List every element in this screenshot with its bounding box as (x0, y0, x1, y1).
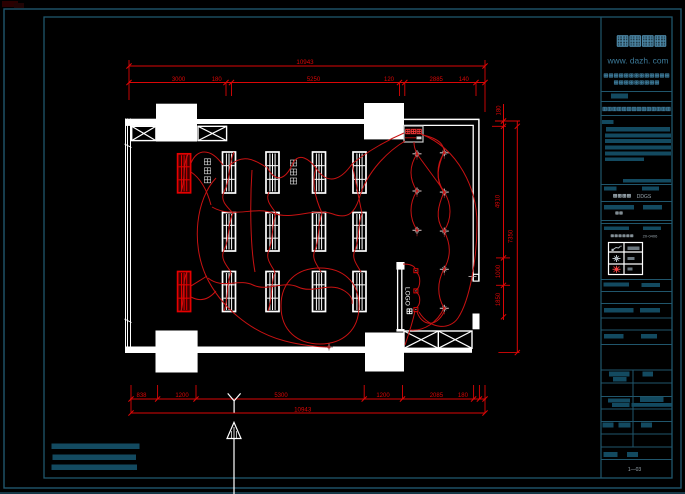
svg-text:180: 180 (458, 393, 469, 399)
svg-text:1200: 1200 (376, 393, 390, 399)
svg-text:10943: 10943 (294, 407, 312, 414)
svg-text:7350: 7350 (508, 229, 514, 243)
svg-text:120: 120 (384, 77, 395, 83)
svg-text:180: 180 (212, 77, 223, 83)
svg-text:20-0406: 20-0406 (643, 234, 658, 239)
svg-text:10943: 10943 (296, 59, 314, 66)
svg-text:1850: 1850 (496, 292, 502, 306)
svg-text:1000: 1000 (496, 264, 502, 278)
svg-text:LOGO: LOGO (404, 287, 411, 306)
svg-text:3000: 3000 (172, 77, 186, 83)
svg-text:5300: 5300 (274, 393, 288, 399)
svg-text:4910: 4910 (496, 194, 502, 208)
svg-text:www. dazh. com: www. dazh. com (607, 56, 669, 66)
svg-text:2085: 2085 (430, 393, 444, 399)
svg-text:2885: 2885 (430, 77, 444, 83)
svg-text:1200: 1200 (175, 393, 189, 399)
svg-text:1—03: 1—03 (628, 467, 642, 473)
svg-text:5250: 5250 (307, 77, 321, 83)
svg-text:140: 140 (459, 77, 470, 83)
svg-text:DDGS: DDGS (637, 194, 652, 200)
svg-text:838: 838 (136, 393, 147, 399)
svg-text:180: 180 (497, 105, 503, 116)
